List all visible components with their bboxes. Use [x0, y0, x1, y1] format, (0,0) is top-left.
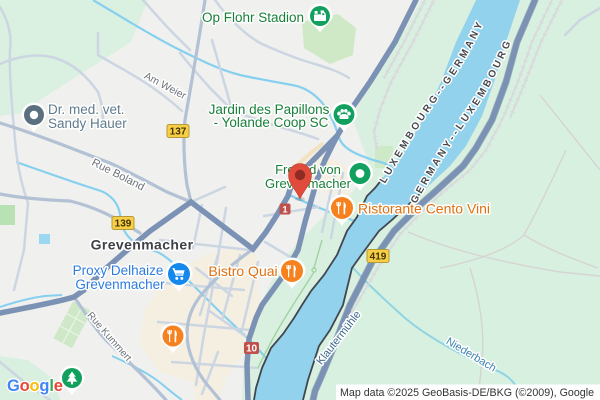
svg-text:Grevenmacher: Grevenmacher [75, 277, 165, 292]
svg-text:Sandy Hauer: Sandy Hauer [48, 116, 127, 131]
svg-text:Op Flohr Stadion: Op Flohr Stadion [202, 10, 304, 25]
svg-text:Proxy Delhaize: Proxy Delhaize [73, 263, 164, 278]
svg-text:Dr. med. vet.: Dr. med. vet. [48, 102, 125, 117]
svg-text:- Yolande Coop SC: - Yolande Coop SC [214, 115, 329, 130]
svg-text:1: 1 [282, 205, 288, 216]
svg-text:Google: Google [7, 377, 63, 395]
svg-text:419: 419 [370, 252, 387, 263]
svg-text:Map data ©2025 GeoBasis-DE/BKG: Map data ©2025 GeoBasis-DE/BKG (©2009), … [340, 387, 594, 399]
svg-text:Grevenmacher: Grevenmacher [91, 237, 194, 253]
svg-text:137: 137 [170, 127, 187, 138]
svg-text:139: 139 [115, 219, 132, 230]
svg-text:Bistro Quai: Bistro Quai [208, 263, 277, 279]
svg-text:10: 10 [246, 344, 258, 355]
svg-text:Ristorante Cento Vini: Ristorante Cento Vini [358, 201, 490, 217]
